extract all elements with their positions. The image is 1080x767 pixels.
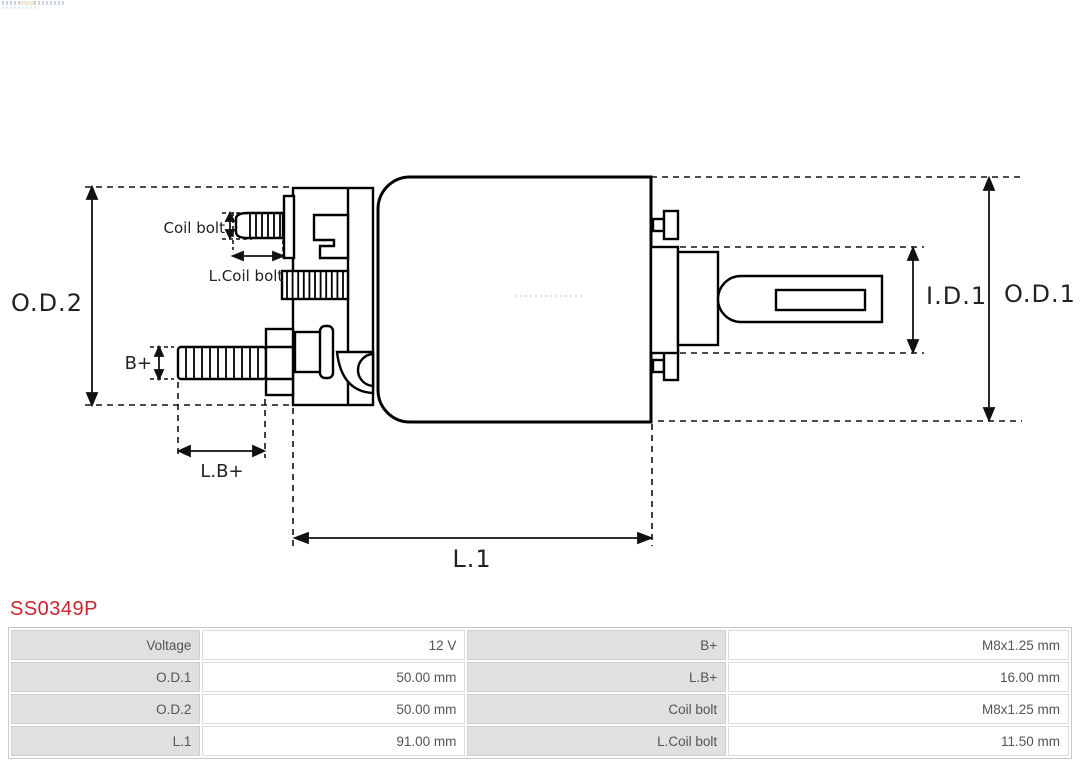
part-number: SS0349P — [10, 598, 98, 621]
label-l1: L.1 — [452, 545, 491, 573]
spec-label-cell: Coil bolt — [467, 694, 726, 724]
label-od1: O.D.1 — [1004, 280, 1076, 308]
spec-table: Voltage 12 V B+ M8x1.25 mm O.D.1 50.00 m… — [8, 627, 1072, 759]
label-lb-plus: L.B+ — [200, 461, 243, 482]
spec-value-cell: M8x1.25 mm — [728, 694, 1069, 724]
spec-label-cell: L.1 — [11, 726, 200, 756]
dim-id1-arrow — [908, 248, 918, 352]
label-b-plus: B+ — [125, 353, 152, 374]
front-cap — [282, 188, 373, 405]
b-plus-hex-nut — [266, 329, 293, 395]
spec-value-cell: 91.00 mm — [202, 726, 465, 756]
rear-end-cap — [651, 247, 718, 353]
spec-label-cell: Voltage — [11, 630, 200, 660]
spec-value-cell: 50.00 mm — [202, 662, 465, 692]
solenoid-outline — [178, 177, 882, 422]
plunger-shaft — [718, 276, 882, 322]
spec-value-cell: 12 V — [202, 630, 465, 660]
b-plus-washer — [320, 326, 333, 378]
coil-bolt-stud — [236, 213, 283, 238]
dim-l1-arrow — [295, 533, 651, 543]
rear-terminal-top — [653, 211, 678, 239]
dim-l-coil-bolt-arrow — [233, 252, 283, 260]
spec-label-cell: O.D.1 — [11, 662, 200, 692]
rear-terminal-bottom — [653, 352, 678, 380]
table-row: O.D.1 50.00 mm L.B+ 16.00 mm — [11, 662, 1069, 692]
spec-label-cell: L.B+ — [467, 662, 726, 692]
label-id1: I.D.1 — [926, 282, 987, 310]
label-od2: O.D.2 — [11, 289, 83, 317]
spec-label-cell: O.D.2 — [11, 694, 200, 724]
dim-b-plus-arrow — [155, 347, 163, 379]
dim-lb-plus-arrow — [179, 446, 264, 456]
table-row: Voltage 12 V B+ M8x1.25 mm — [11, 630, 1069, 660]
spec-value-cell: 11.50 mm — [728, 726, 1069, 756]
table-row: O.D.2 50.00 mm Coil bolt M8x1.25 mm — [11, 694, 1069, 724]
spec-value-cell: 16.00 mm — [728, 662, 1069, 692]
table-row: L.1 91.00 mm L.Coil bolt 11.50 mm — [11, 726, 1069, 756]
spec-label-cell: B+ — [467, 630, 726, 660]
label-l-coil-bolt: L.Coil bolt — [209, 267, 284, 285]
b-plus-terminal-stud — [178, 329, 293, 395]
plunger-slot — [776, 290, 865, 310]
spec-value-cell: 50.00 mm — [202, 694, 465, 724]
solenoid-technical-drawing: O.D.2 O.D.1 I.D.1 L.1 L.B+ B+ Coil bolt … — [0, 0, 1080, 595]
dim-od2-arrow — [87, 187, 97, 405]
cap-terminal-step — [314, 215, 348, 258]
solenoid-body — [378, 177, 651, 422]
spec-label-cell: L.Coil bolt — [467, 726, 726, 756]
label-coil-bolt: Coil bolt — [163, 219, 225, 237]
spec-value-cell: M8x1.25 mm — [728, 630, 1069, 660]
dim-coil-bolt-arrow — [226, 213, 234, 238]
